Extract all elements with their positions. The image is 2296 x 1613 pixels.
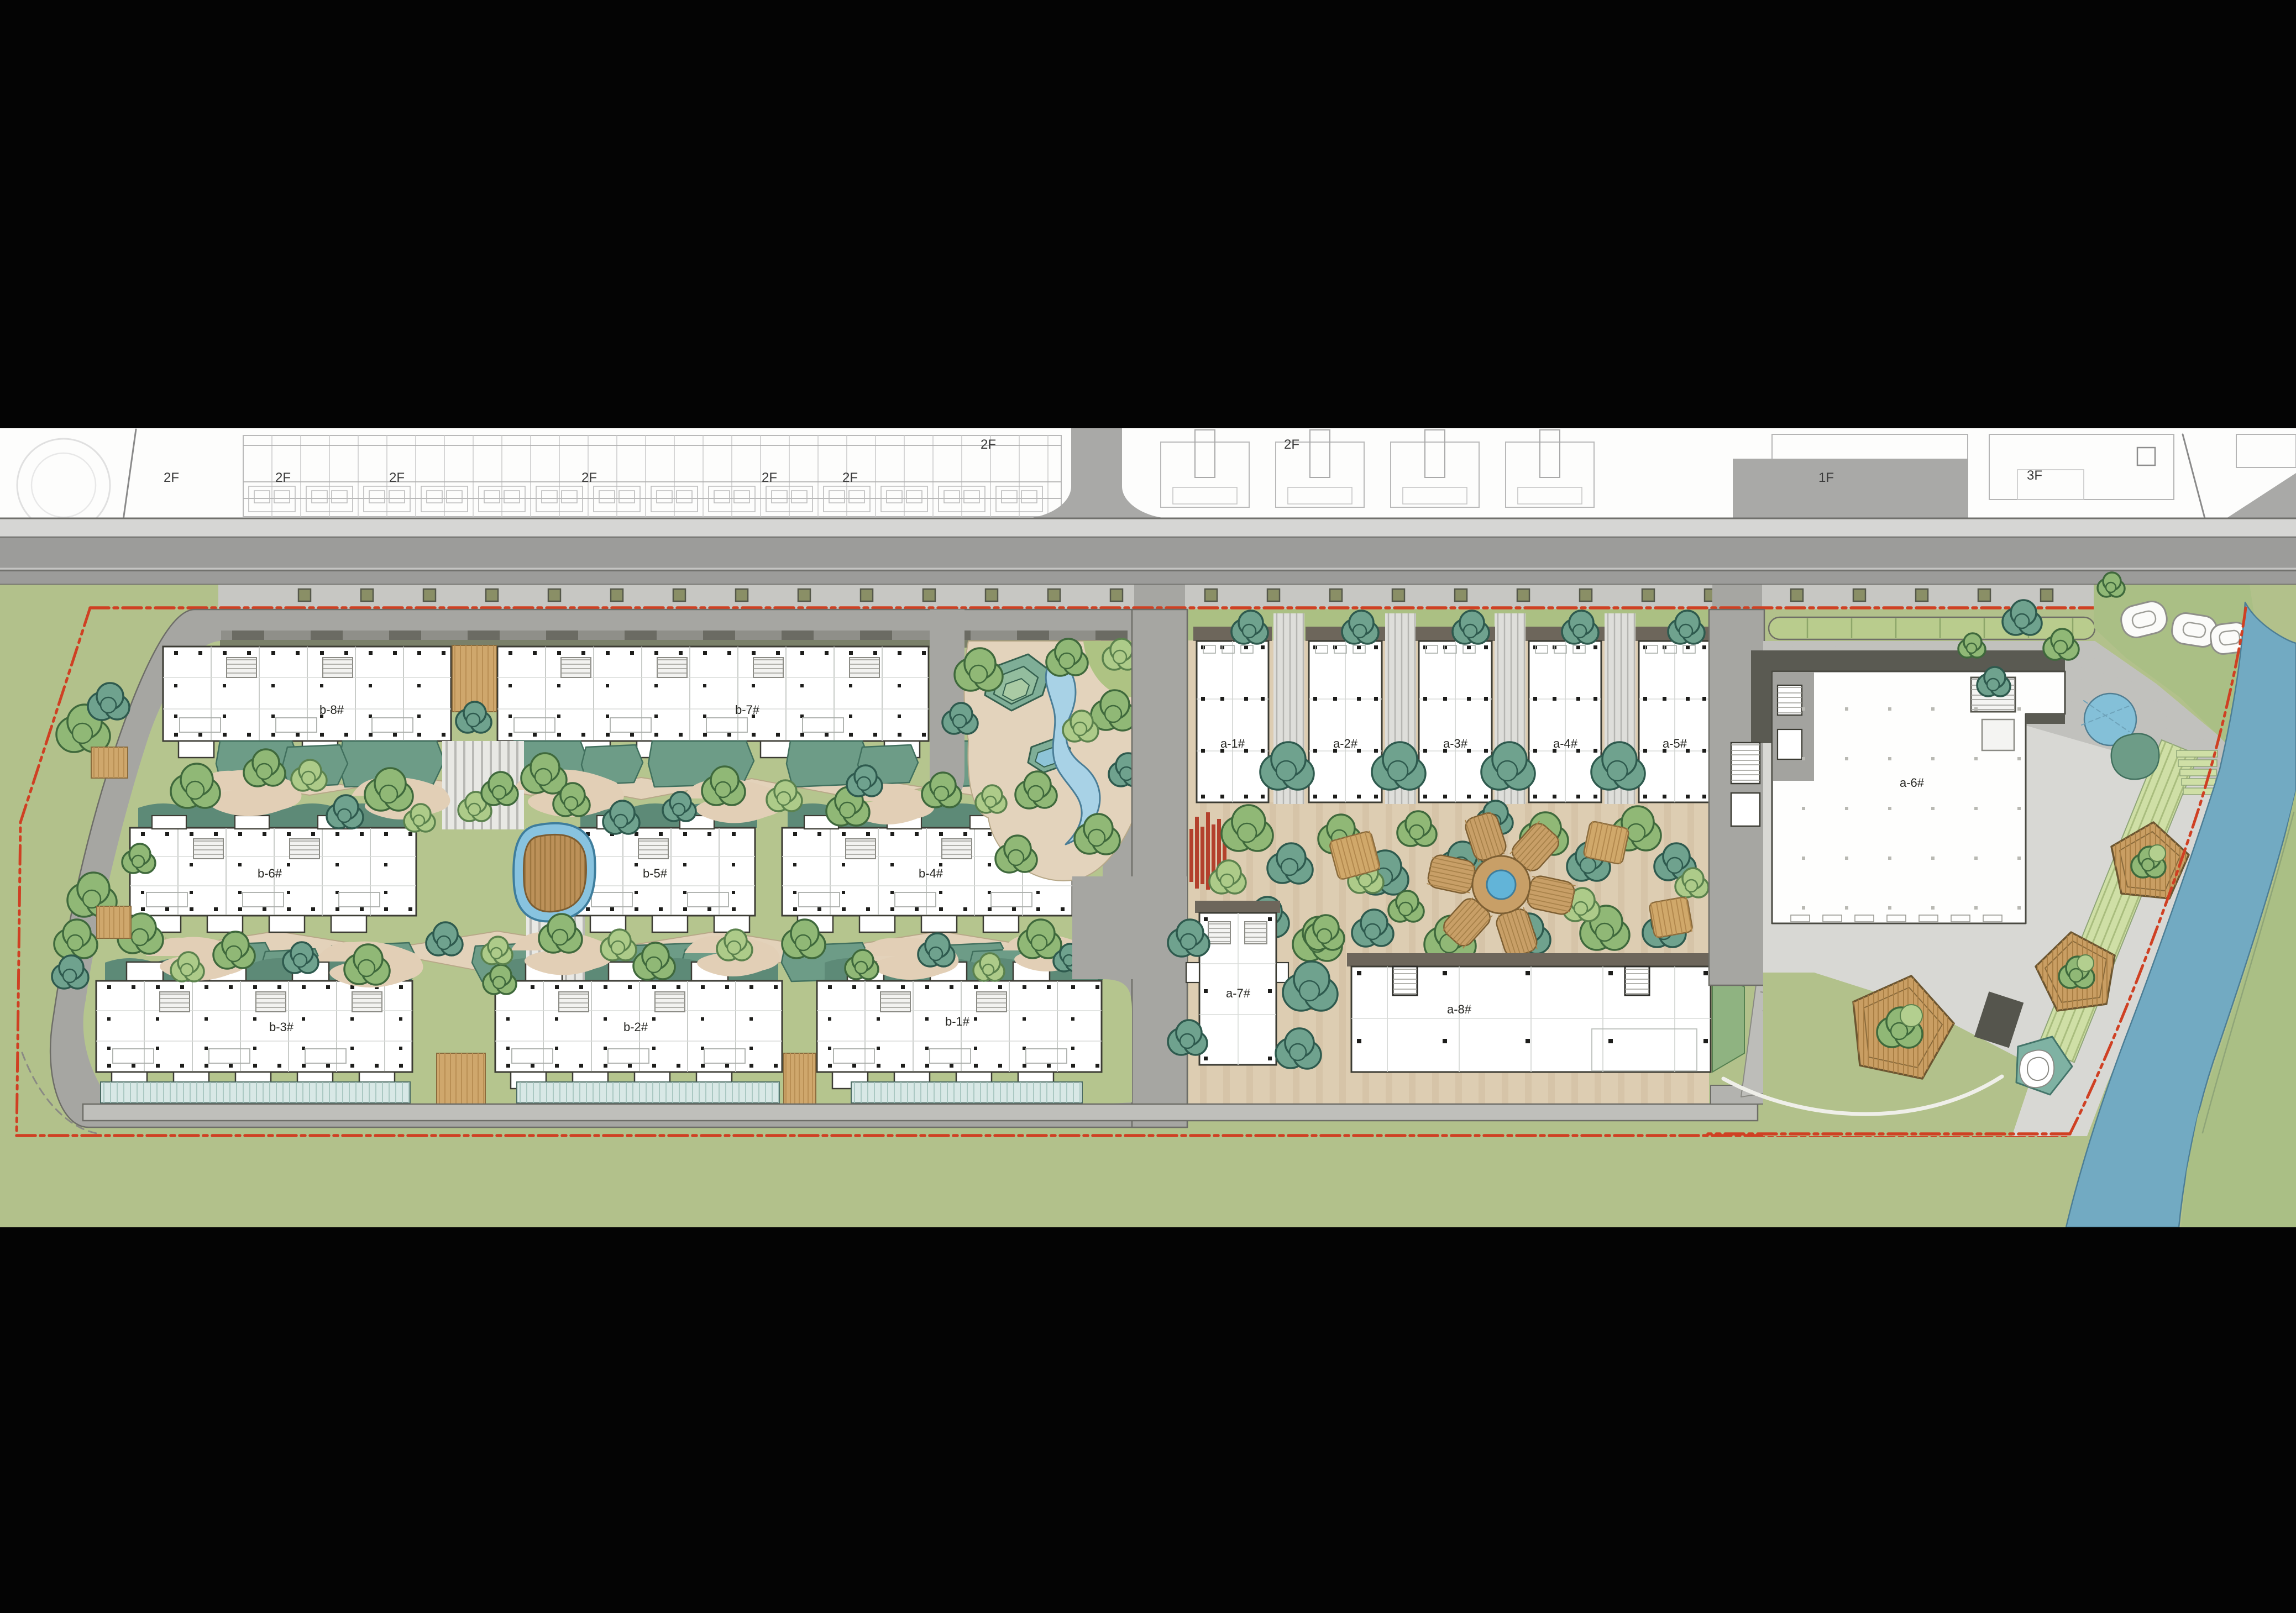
svg-text:2F: 2F: [762, 470, 777, 485]
svg-text:a-3#: a-3#: [1443, 737, 1468, 750]
svg-text:a-8#: a-8#: [1447, 1002, 1472, 1016]
svg-text:a-1#: a-1#: [1220, 737, 1245, 750]
svg-text:2F: 2F: [1284, 437, 1299, 452]
svg-text:b-1#: b-1#: [945, 1015, 970, 1028]
svg-text:2F: 2F: [164, 470, 179, 485]
svg-text:b-5#: b-5#: [643, 866, 668, 880]
svg-text:2F: 2F: [842, 470, 858, 485]
svg-text:2F: 2F: [581, 470, 597, 485]
svg-text:1F: 1F: [1818, 470, 1834, 485]
svg-text:3F: 3F: [2027, 468, 2042, 483]
svg-text:b-3#: b-3#: [269, 1020, 294, 1034]
svg-text:a-5#: a-5#: [1663, 737, 1687, 750]
svg-text:2F: 2F: [981, 437, 996, 452]
svg-text:2F: 2F: [275, 470, 291, 485]
svg-text:a-7#: a-7#: [1226, 986, 1251, 1000]
svg-text:b-6#: b-6#: [258, 866, 282, 880]
svg-text:a-6#: a-6#: [1900, 776, 1925, 790]
svg-text:b-2#: b-2#: [623, 1020, 648, 1034]
svg-text:a-4#: a-4#: [1553, 737, 1578, 750]
svg-text:b-7#: b-7#: [735, 703, 760, 717]
svg-text:a-2#: a-2#: [1333, 737, 1358, 750]
svg-text:b-8#: b-8#: [319, 703, 344, 717]
svg-text:2F: 2F: [389, 470, 405, 485]
svg-text:b-4#: b-4#: [919, 866, 943, 880]
